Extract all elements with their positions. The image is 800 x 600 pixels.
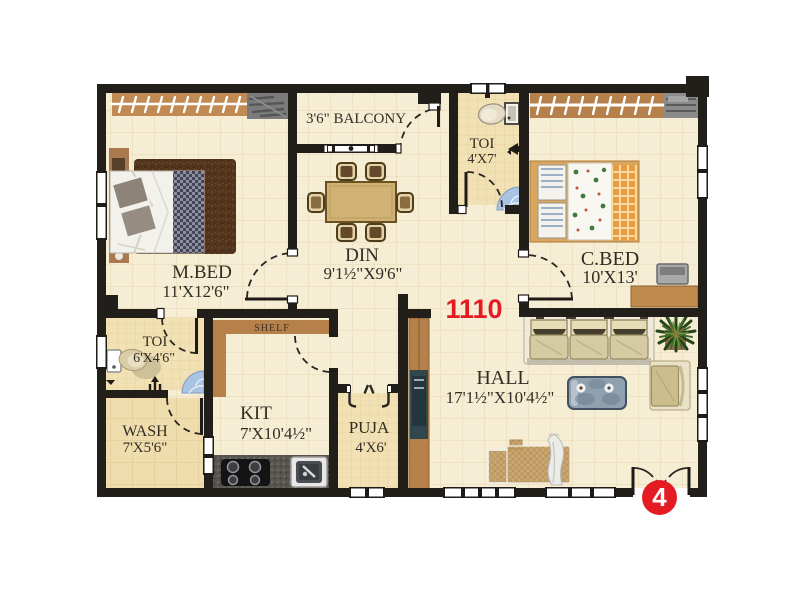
svg-text:7'X10'4½": 7'X10'4½" (240, 424, 312, 443)
svg-text:10'X13': 10'X13' (582, 267, 638, 287)
svg-text:WASH: WASH (122, 423, 168, 440)
svg-text:4'X6': 4'X6' (355, 440, 387, 456)
svg-text:4: 4 (652, 482, 667, 512)
svg-text:1110: 1110 (445, 294, 502, 324)
svg-text:4'X7': 4'X7' (467, 152, 496, 167)
svg-text:TOI: TOI (143, 334, 168, 350)
svg-text:PUJA: PUJA (349, 418, 390, 437)
svg-text:11'X12'6": 11'X12'6" (162, 282, 229, 301)
svg-text:7'X5'6": 7'X5'6" (123, 440, 168, 456)
svg-text:9'1½"X9'6": 9'1½"X9'6" (323, 264, 402, 283)
svg-text:HALL: HALL (476, 367, 529, 389)
svg-text:3'6" BALCONY: 3'6" BALCONY (306, 111, 406, 127)
svg-text:M.BED: M.BED (172, 262, 232, 283)
svg-text:DIN: DIN (345, 245, 379, 266)
svg-text:SHELF: SHELF (254, 323, 290, 334)
svg-text:17'1½"X10'4½": 17'1½"X10'4½" (446, 388, 555, 407)
svg-text:TOI: TOI (470, 136, 495, 152)
svg-text:KIT: KIT (240, 403, 272, 424)
svg-text:6'X4'6": 6'X4'6" (133, 351, 175, 366)
